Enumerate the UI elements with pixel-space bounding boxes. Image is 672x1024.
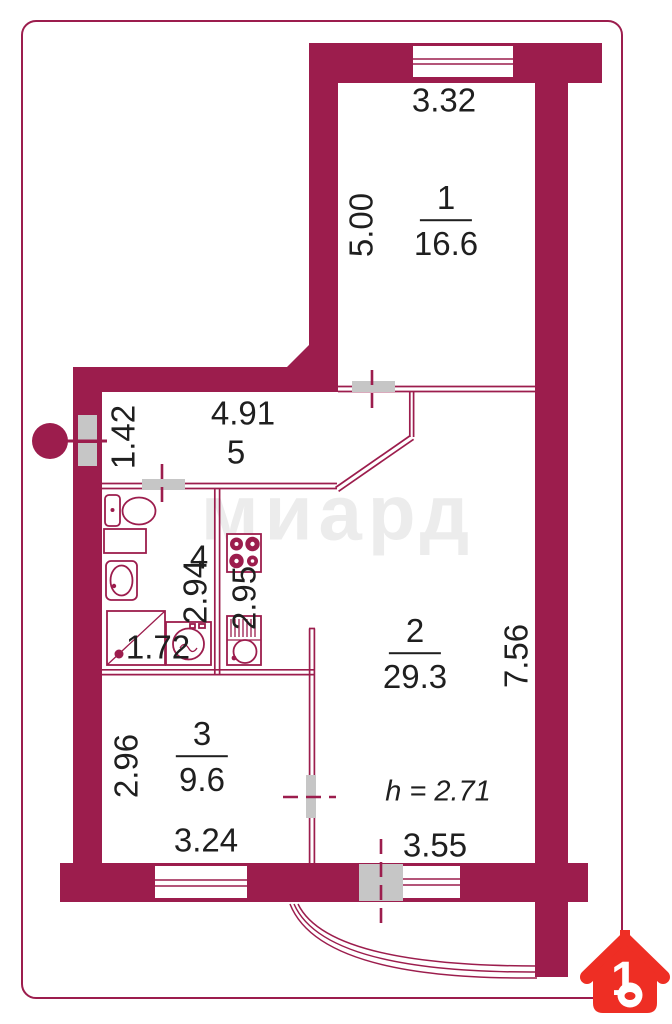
room1-number: 1	[420, 181, 472, 221]
dim-room2-depth: 7.56	[500, 624, 533, 688]
dim-room3-depth: 2.96	[110, 734, 143, 798]
room2-number: 2	[389, 614, 441, 654]
bathroom-counter	[104, 529, 146, 553]
toilet-icon	[105, 495, 156, 526]
room3-area: 9.6	[176, 757, 228, 799]
window-top	[413, 46, 513, 77]
room2-area: 29.3	[383, 654, 447, 696]
dim-hall-depth: 1.42	[107, 405, 140, 469]
room3-label: 3 9.6	[176, 717, 228, 799]
ceiling-height-label: h = 2.71	[385, 778, 491, 807]
dim-room1-depth: 5.00	[345, 193, 378, 257]
room1-door	[352, 381, 395, 392]
dim-room1-width: 3.32	[412, 84, 476, 117]
dim-room3-width: 3.24	[174, 824, 238, 857]
balcony-railing	[290, 904, 537, 978]
room1-area: 16.6	[414, 221, 478, 263]
dim-hall-width: 4.91	[211, 397, 275, 430]
room1-label: 1 16.6	[414, 181, 478, 263]
washbasin-icon	[106, 561, 137, 600]
floor-plan: миард	[0, 0, 672, 1024]
room5-number: 5	[227, 436, 245, 469]
window-bottom-left	[155, 866, 247, 898]
bathroom-door	[142, 479, 185, 490]
dim-kitchen-depth: 2.95	[228, 566, 261, 630]
room2-label: 2 29.3	[383, 614, 447, 696]
dim-bath-depth: 2.94	[179, 560, 212, 624]
floor-plan-drawing: 1	[0, 0, 672, 1024]
dim-balcony-width: 3.55	[403, 829, 467, 862]
agency-logo-house-icon: 1	[587, 930, 663, 1013]
room3-number: 3	[176, 717, 228, 757]
window-balcony	[403, 866, 460, 898]
dim-shower: 1.72	[126, 631, 190, 664]
